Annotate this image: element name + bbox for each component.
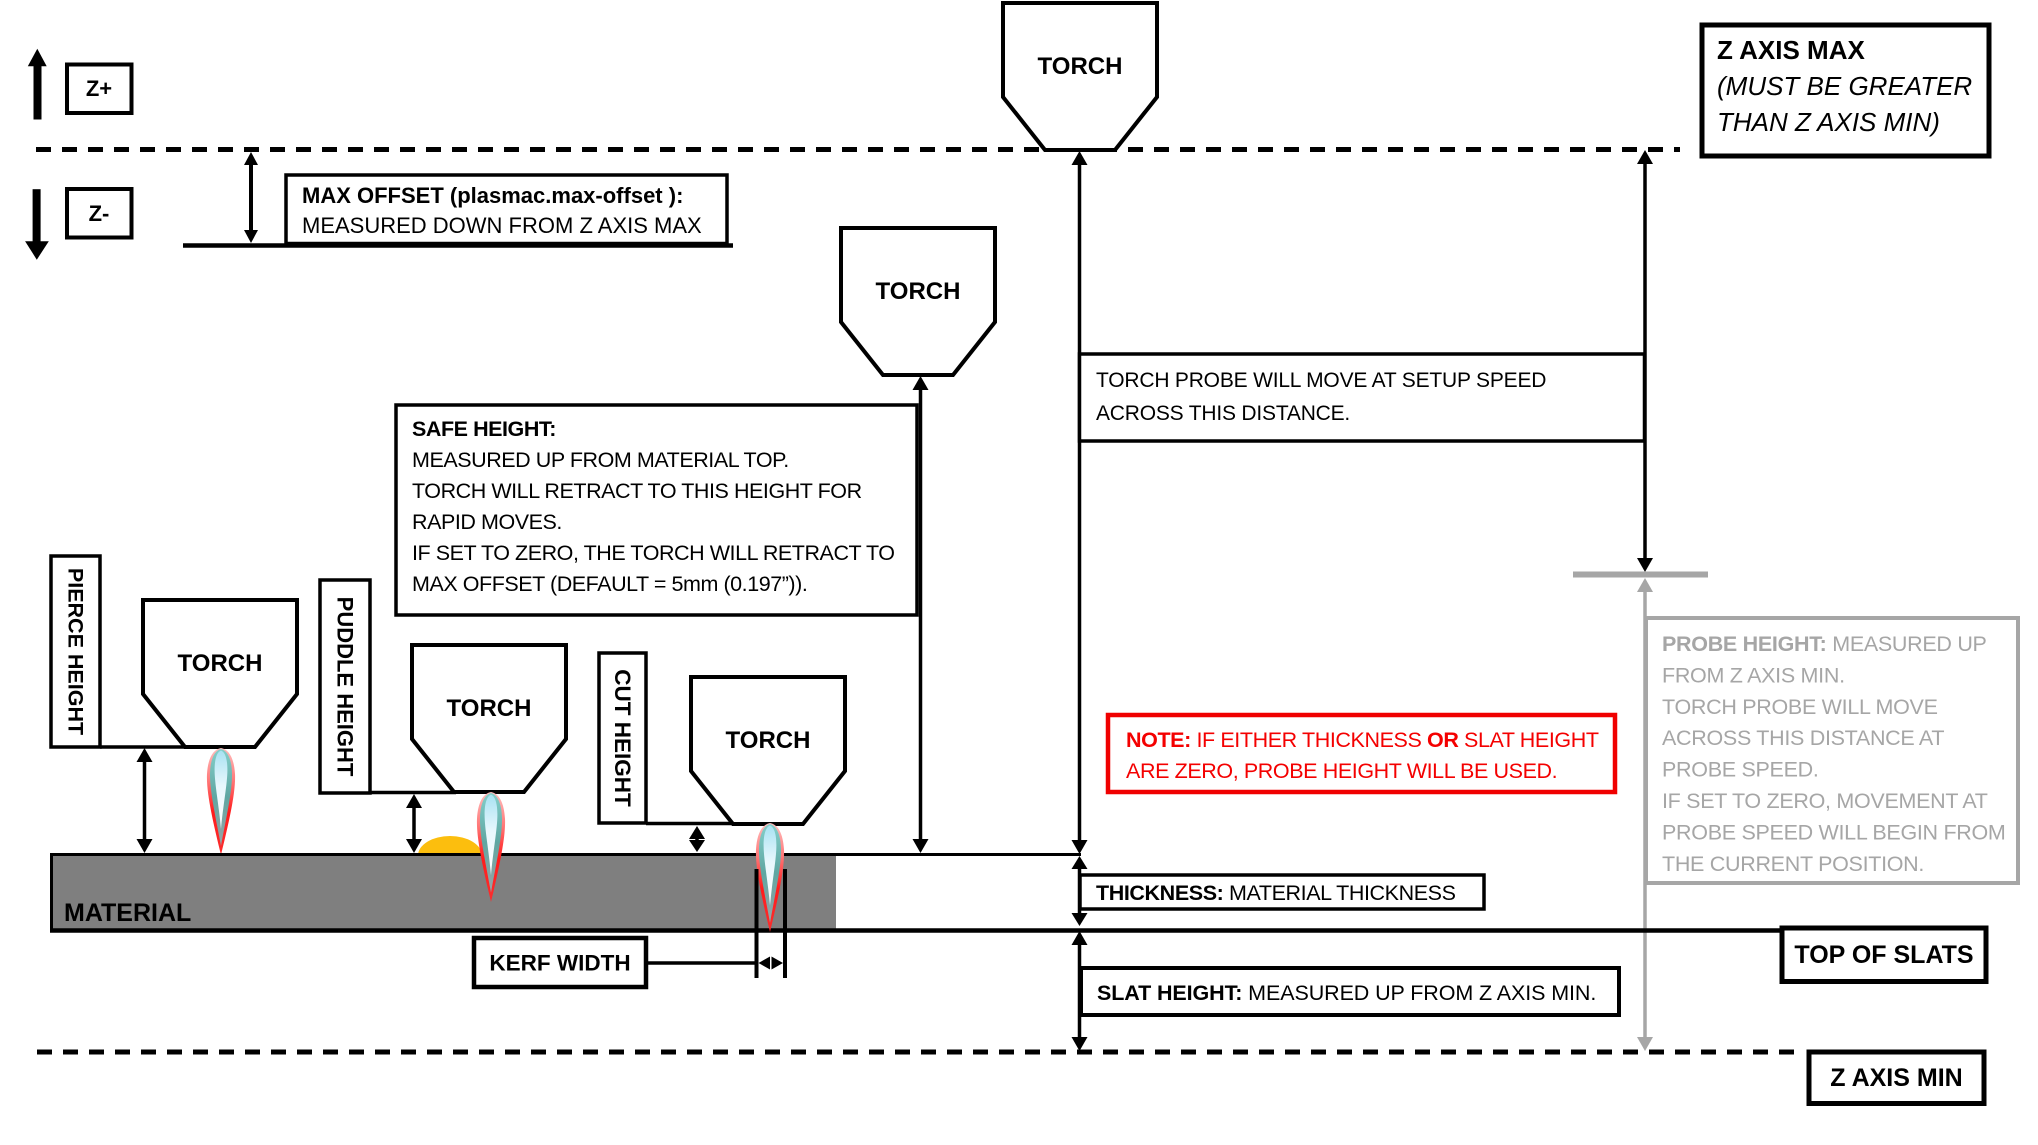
svg-text:KERF WIDTH: KERF WIDTH <box>489 951 630 976</box>
svg-text:THICKNESS: MATERIAL THICKNESS: THICKNESS: MATERIAL THICKNESS <box>1096 881 1456 905</box>
svg-text:TORCH PROBE WILL MOVE AT SETUP: TORCH PROBE WILL MOVE AT SETUP SPEED <box>1096 369 1546 392</box>
svg-text:Z AXIS MIN: Z AXIS MIN <box>1830 1064 1962 1092</box>
svg-text:IF SET TO ZERO, MOVEMENT AT: IF SET TO ZERO, MOVEMENT AT <box>1662 789 1988 813</box>
svg-text:TORCH: TORCH <box>1038 53 1123 80</box>
svg-text:Z AXIS MAX: Z AXIS MAX <box>1717 35 1865 65</box>
svg-text:ARE ZERO, PROBE HEIGHT WILL BE: ARE ZERO, PROBE HEIGHT WILL BE USED. <box>1126 759 1557 783</box>
svg-text:Z-: Z- <box>89 201 110 226</box>
svg-text:MAX OFFSET (plasmac.max-offset: MAX OFFSET (plasmac.max-offset ): <box>302 183 683 208</box>
svg-text:ACROSS THIS DISTANCE.: ACROSS THIS DISTANCE. <box>1096 402 1350 425</box>
svg-text:ACROSS THIS DISTANCE AT: ACROSS THIS DISTANCE AT <box>1662 726 1944 750</box>
svg-text:RAPID MOVES.: RAPID MOVES. <box>412 510 562 534</box>
svg-text:TORCH: TORCH <box>178 650 263 677</box>
svg-text:THE CURRENT POSITION.: THE CURRENT POSITION. <box>1662 852 1924 876</box>
svg-text:PIERCE HEIGHT: PIERCE HEIGHT <box>64 568 88 735</box>
svg-text:FROM Z AXIS MIN.: FROM Z AXIS MIN. <box>1662 663 1845 687</box>
svg-text:PROBE SPEED.: PROBE SPEED. <box>1662 758 1819 782</box>
svg-text:CUT HEIGHT: CUT HEIGHT <box>610 669 635 807</box>
svg-text:PROBE SPEED WILL BEGIN FROM: PROBE SPEED WILL BEGIN FROM <box>1662 820 2006 844</box>
svg-text:Z+: Z+ <box>86 76 112 101</box>
svg-text:(MUST BE GREATER: (MUST BE GREATER <box>1717 71 1972 101</box>
svg-text:PUDDLE HEIGHT: PUDDLE HEIGHT <box>333 597 358 777</box>
svg-text:MEASURED DOWN FROM Z AXIS MAX: MEASURED DOWN FROM Z AXIS MAX <box>302 213 702 238</box>
svg-text:SLAT HEIGHT: MEASURED UP FROM: SLAT HEIGHT: MEASURED UP FROM Z AXIS MIN… <box>1097 981 1596 1005</box>
svg-text:SAFE HEIGHT:: SAFE HEIGHT: <box>412 417 556 441</box>
svg-text:THAN Z AXIS MIN): THAN Z AXIS MIN) <box>1717 107 1940 137</box>
svg-text:MEASURED UP FROM MATERIAL TOP.: MEASURED UP FROM MATERIAL TOP. <box>412 448 789 472</box>
svg-text:PROBE HEIGHT: MEASURED UP: PROBE HEIGHT: MEASURED UP <box>1662 632 1987 656</box>
svg-text:TORCH: TORCH <box>876 278 961 305</box>
svg-text:IF SET TO ZERO, THE TORCH WILL: IF SET TO ZERO, THE TORCH WILL RETRACT T… <box>412 541 895 565</box>
svg-text:TORCH: TORCH <box>447 695 532 722</box>
svg-text:TORCH: TORCH <box>726 727 811 754</box>
svg-text:MAX OFFSET (DEFAULT = 5mm (0.1: MAX OFFSET (DEFAULT = 5mm (0.197”)). <box>412 572 807 596</box>
svg-text:TORCH PROBE WILL MOVE: TORCH PROBE WILL MOVE <box>1662 695 1938 719</box>
svg-text:NOTE: IF EITHER THICKNESS OR: NOTE: IF EITHER THICKNESS OR SLAT HEIGHT <box>1126 728 1599 752</box>
svg-text:TORCH WILL RETRACT TO THIS HEI: TORCH WILL RETRACT TO THIS HEIGHT FOR <box>412 479 862 503</box>
svg-text:TOP OF SLATS: TOP OF SLATS <box>1794 941 1973 969</box>
svg-text:MATERIAL: MATERIAL <box>64 899 191 927</box>
